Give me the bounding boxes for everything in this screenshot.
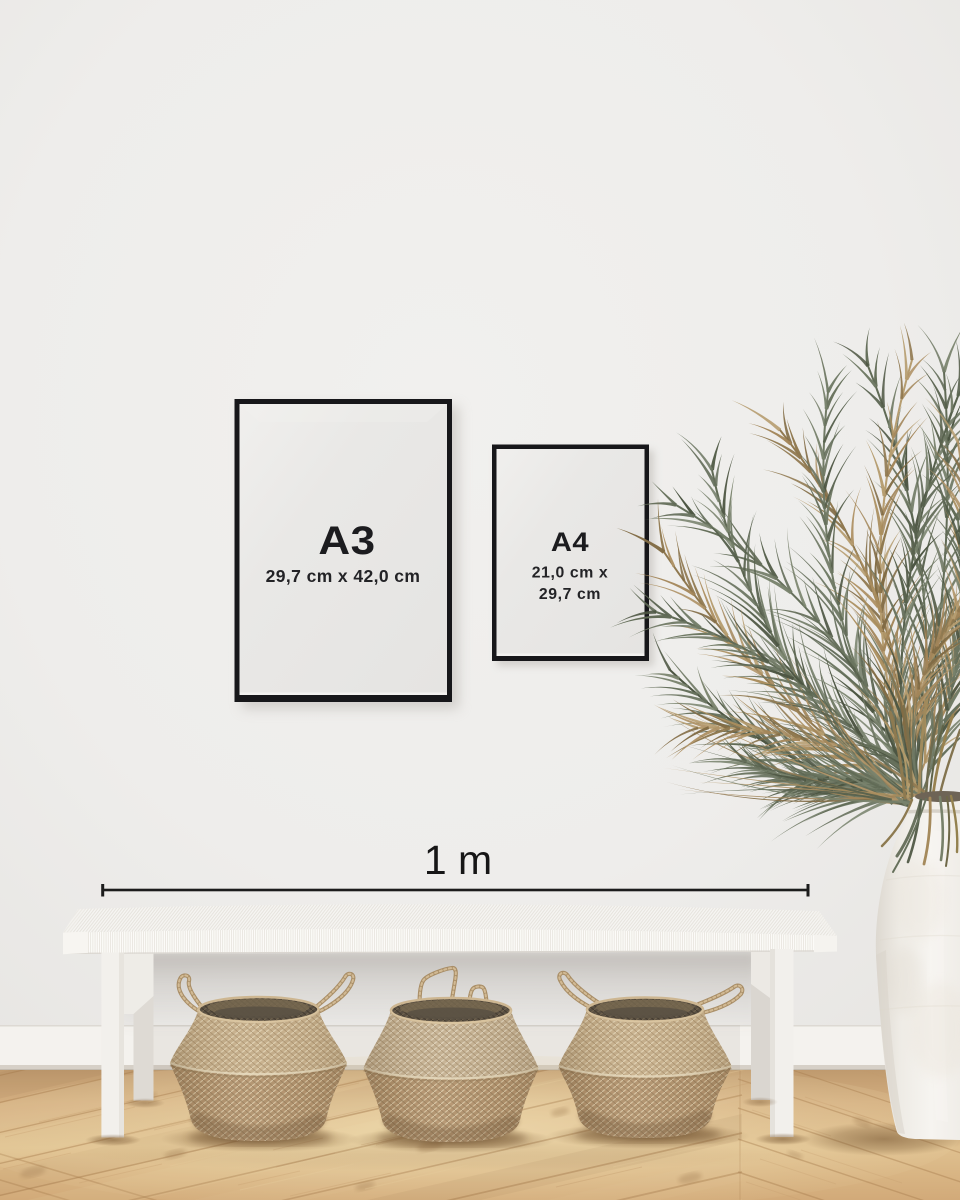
svg-text:1 m: 1 m (424, 837, 492, 883)
svg-text:21,0 cm x: 21,0 cm x (532, 565, 609, 582)
svg-text:29,7 cm: 29,7 cm (539, 586, 601, 603)
svg-text:29,7 cm x 42,0 cm: 29,7 cm x 42,0 cm (266, 566, 421, 586)
svg-text:A4: A4 (551, 527, 589, 556)
svg-text:A3: A3 (318, 518, 375, 563)
